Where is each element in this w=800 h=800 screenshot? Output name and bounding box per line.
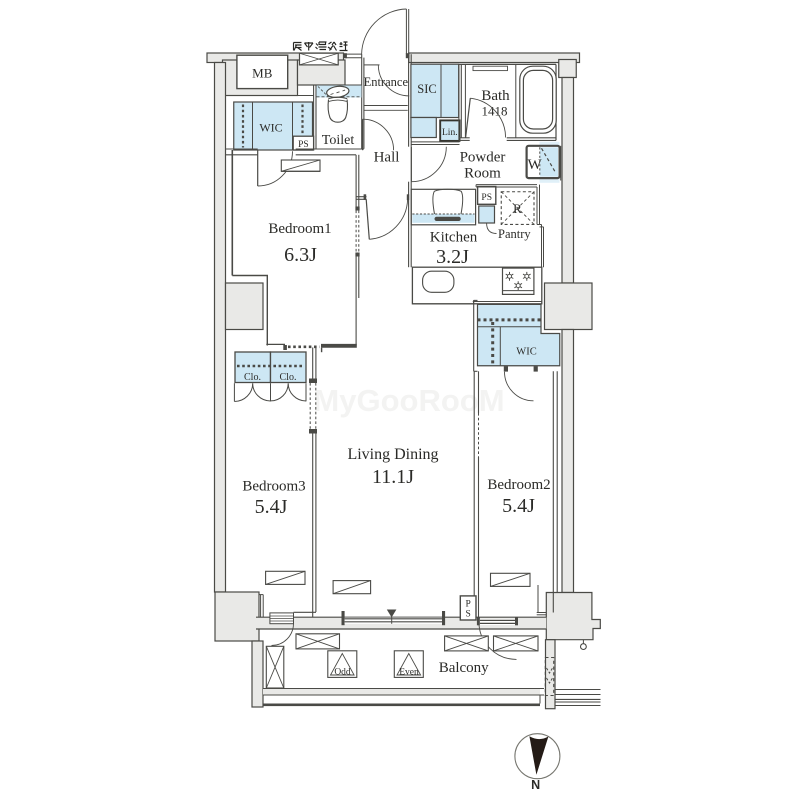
svg-text:Living Dining: Living Dining bbox=[347, 446, 438, 463]
svg-text:Clo.: Clo. bbox=[244, 372, 261, 383]
svg-text:W: W bbox=[528, 157, 543, 173]
svg-text:5.4J: 5.4J bbox=[502, 495, 535, 517]
svg-text:R: R bbox=[513, 201, 522, 216]
svg-text:6.3J: 6.3J bbox=[284, 244, 317, 266]
svg-text:Bedroom1: Bedroom1 bbox=[268, 221, 331, 237]
svg-text:P: P bbox=[466, 600, 471, 610]
svg-text:Hall: Hall bbox=[374, 150, 400, 166]
svg-text:Clo.: Clo. bbox=[280, 372, 297, 383]
svg-text:N: N bbox=[531, 778, 540, 792]
svg-text:1418: 1418 bbox=[482, 104, 508, 119]
svg-text:Bedroom3: Bedroom3 bbox=[242, 479, 305, 495]
svg-text:SIC: SIC bbox=[417, 82, 436, 96]
svg-text:3.2J: 3.2J bbox=[436, 246, 469, 268]
svg-text:Kitchen: Kitchen bbox=[430, 230, 478, 246]
svg-text:Pantry: Pantry bbox=[498, 227, 531, 241]
svg-text:Lin.: Lin. bbox=[442, 128, 458, 138]
svg-text:WIC: WIC bbox=[259, 121, 282, 135]
svg-text:Bath: Bath bbox=[481, 88, 510, 104]
svg-text:Even: Even bbox=[399, 668, 419, 678]
svg-text:11.1J: 11.1J bbox=[372, 466, 414, 488]
svg-text:PS: PS bbox=[481, 193, 492, 203]
svg-text:Odd: Odd bbox=[334, 668, 351, 678]
svg-text:Balcony: Balcony bbox=[439, 660, 489, 676]
svg-text:MB: MB bbox=[252, 66, 273, 81]
svg-text:Entrance: Entrance bbox=[364, 75, 409, 89]
svg-text:5.4J: 5.4J bbox=[255, 496, 288, 518]
svg-text:S: S bbox=[466, 610, 471, 620]
svg-text:MyGooRooM: MyGooRooM bbox=[313, 383, 504, 418]
svg-text:WIC: WIC bbox=[516, 347, 536, 358]
svg-text:Toilet: Toilet bbox=[322, 133, 355, 148]
svg-text:Room: Room bbox=[464, 166, 501, 182]
svg-text:Powder: Powder bbox=[460, 150, 506, 166]
svg-text:Bedroom2: Bedroom2 bbox=[487, 477, 550, 493]
